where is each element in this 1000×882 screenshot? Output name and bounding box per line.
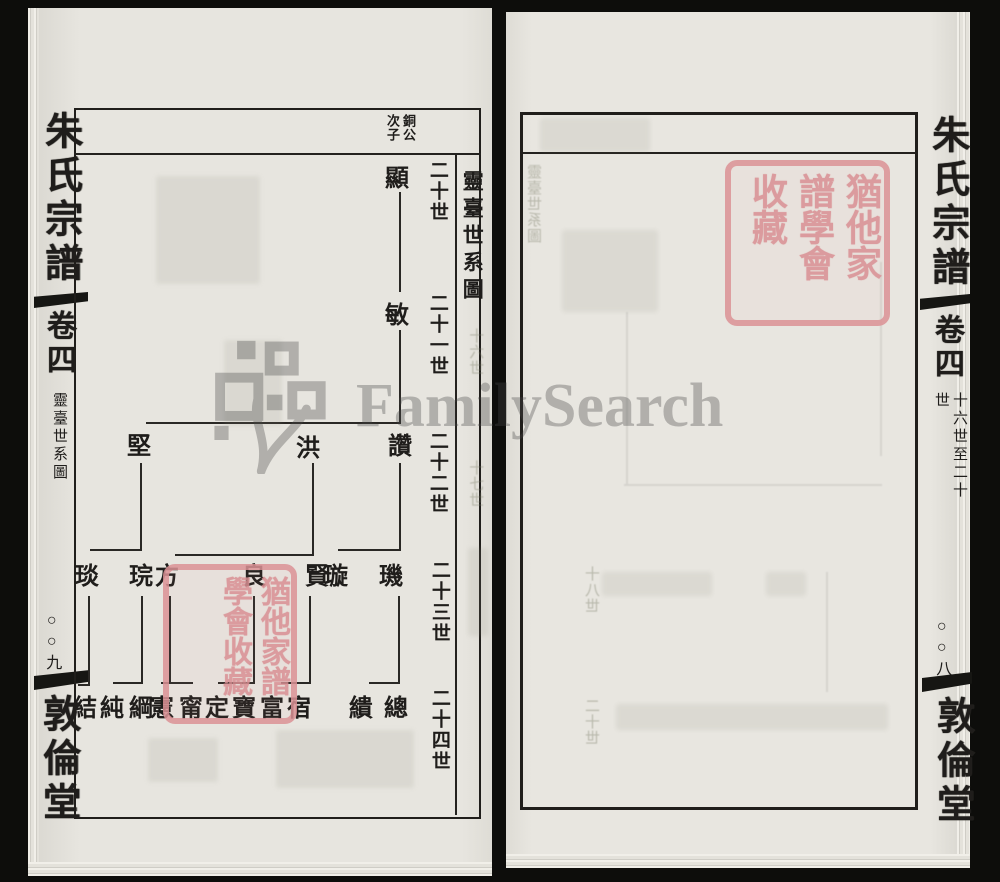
generation-label: 二十世 bbox=[426, 160, 447, 223]
bleed-through-text: 十六世 bbox=[466, 328, 483, 376]
bleed-through-line bbox=[624, 484, 882, 486]
chart-title: 靈臺世系圖 bbox=[459, 170, 484, 335]
lineage-annotation: 銅公次子 bbox=[384, 114, 416, 150]
person-node: 洪 bbox=[295, 436, 321, 462]
page-edge-stack-bottom bbox=[28, 862, 492, 876]
person-node: 純 bbox=[99, 696, 125, 722]
page-number: ○○九 bbox=[42, 612, 61, 674]
lineage-line bbox=[140, 463, 142, 549]
person-node: 琓 bbox=[128, 564, 154, 590]
bleed-through-line bbox=[826, 572, 828, 692]
bleed-through-smudge bbox=[468, 548, 488, 636]
bleed-through-text: 十七世 bbox=[466, 460, 483, 508]
spine-volume: 卷四 bbox=[928, 314, 964, 394]
bleed-through-smudge bbox=[602, 572, 712, 596]
person-node: 顯 bbox=[384, 166, 410, 192]
spine-generation-range: 十六世至二十世 bbox=[932, 392, 968, 512]
person-node: 結 bbox=[72, 696, 98, 722]
person-node: 琰 bbox=[74, 564, 100, 590]
frame-inner-rule bbox=[523, 152, 915, 154]
lineage-line bbox=[369, 682, 400, 684]
lineage-line bbox=[399, 330, 401, 422]
page-number: ○○八 bbox=[932, 618, 951, 680]
generation-label: 二十三世 bbox=[428, 560, 449, 644]
bleed-through-smudge bbox=[562, 230, 658, 312]
spine-hall-name: 敦倫堂 bbox=[928, 696, 974, 868]
left-page: 朱氏宗譜 卷四 靈臺世系圖 ○○九 敦倫堂 銅公次子 靈臺世系圖 二十世二十一世… bbox=[28, 8, 492, 876]
person-node: 敏 bbox=[384, 303, 410, 329]
bleed-through-smudge bbox=[540, 118, 650, 152]
bleed-through-smudge bbox=[156, 176, 260, 284]
right-page: 猶他家譜學會收藏 靈臺世系圖十八世二十世 朱氏宗譜 卷四 十六世至二十世 ○○八… bbox=[506, 12, 970, 868]
lineage-line bbox=[312, 463, 314, 554]
spine-book-title: 朱氏宗譜 bbox=[923, 115, 969, 300]
bleed-through-smudge bbox=[766, 572, 806, 596]
lineage-line bbox=[141, 596, 143, 682]
generation-label: 二十一世 bbox=[426, 293, 447, 377]
bleed-through-smudge bbox=[276, 730, 414, 788]
collection-seal: 猶他家譜學會收藏 bbox=[725, 160, 890, 326]
bleed-through-text: 二十世 bbox=[586, 698, 603, 746]
spine-volume: 卷四 bbox=[40, 310, 76, 396]
person-node: 總 bbox=[383, 696, 409, 722]
lineage-line bbox=[90, 549, 142, 551]
lineage-line bbox=[338, 549, 401, 551]
lineage-line bbox=[398, 596, 400, 682]
spine-section-title: 靈臺世系圖 bbox=[50, 392, 68, 484]
lineage-line bbox=[399, 192, 401, 292]
title-column-rule bbox=[455, 155, 457, 815]
generation-label: 二十四世 bbox=[428, 688, 449, 772]
lineage-line bbox=[113, 682, 143, 684]
bleed-through-smudge bbox=[148, 738, 218, 782]
person-node: 璣 bbox=[378, 564, 404, 590]
bleed-through-smudge bbox=[616, 704, 888, 730]
collection-seal: 猶他家譜學會收藏 bbox=[163, 564, 297, 724]
person-node: 繢 bbox=[348, 696, 374, 722]
person-node: 賢 bbox=[304, 564, 330, 590]
bleed-through-smudge bbox=[224, 340, 282, 426]
bleed-through-text: 靈臺世系圖 bbox=[528, 164, 545, 244]
generation-label: 二十二世 bbox=[426, 431, 447, 515]
lineage-line bbox=[175, 554, 314, 556]
person-node: 堅 bbox=[126, 434, 152, 460]
person-node: 讚 bbox=[387, 434, 413, 460]
frame-inner-rule bbox=[74, 153, 481, 155]
page-edge-stack-bottom bbox=[506, 854, 970, 868]
genealogy-book-scan: 朱氏宗譜 卷四 靈臺世系圖 ○○九 敦倫堂 銅公次子 靈臺世系圖 二十世二十一世… bbox=[0, 0, 1000, 882]
lineage-line bbox=[88, 596, 90, 684]
person-node: 綱 bbox=[128, 696, 154, 722]
bleed-through-line bbox=[626, 312, 628, 484]
bleed-through-text: 十八世 bbox=[586, 566, 603, 614]
lineage-line bbox=[309, 596, 311, 682]
lineage-line bbox=[78, 684, 90, 686]
lineage-line bbox=[399, 463, 401, 549]
